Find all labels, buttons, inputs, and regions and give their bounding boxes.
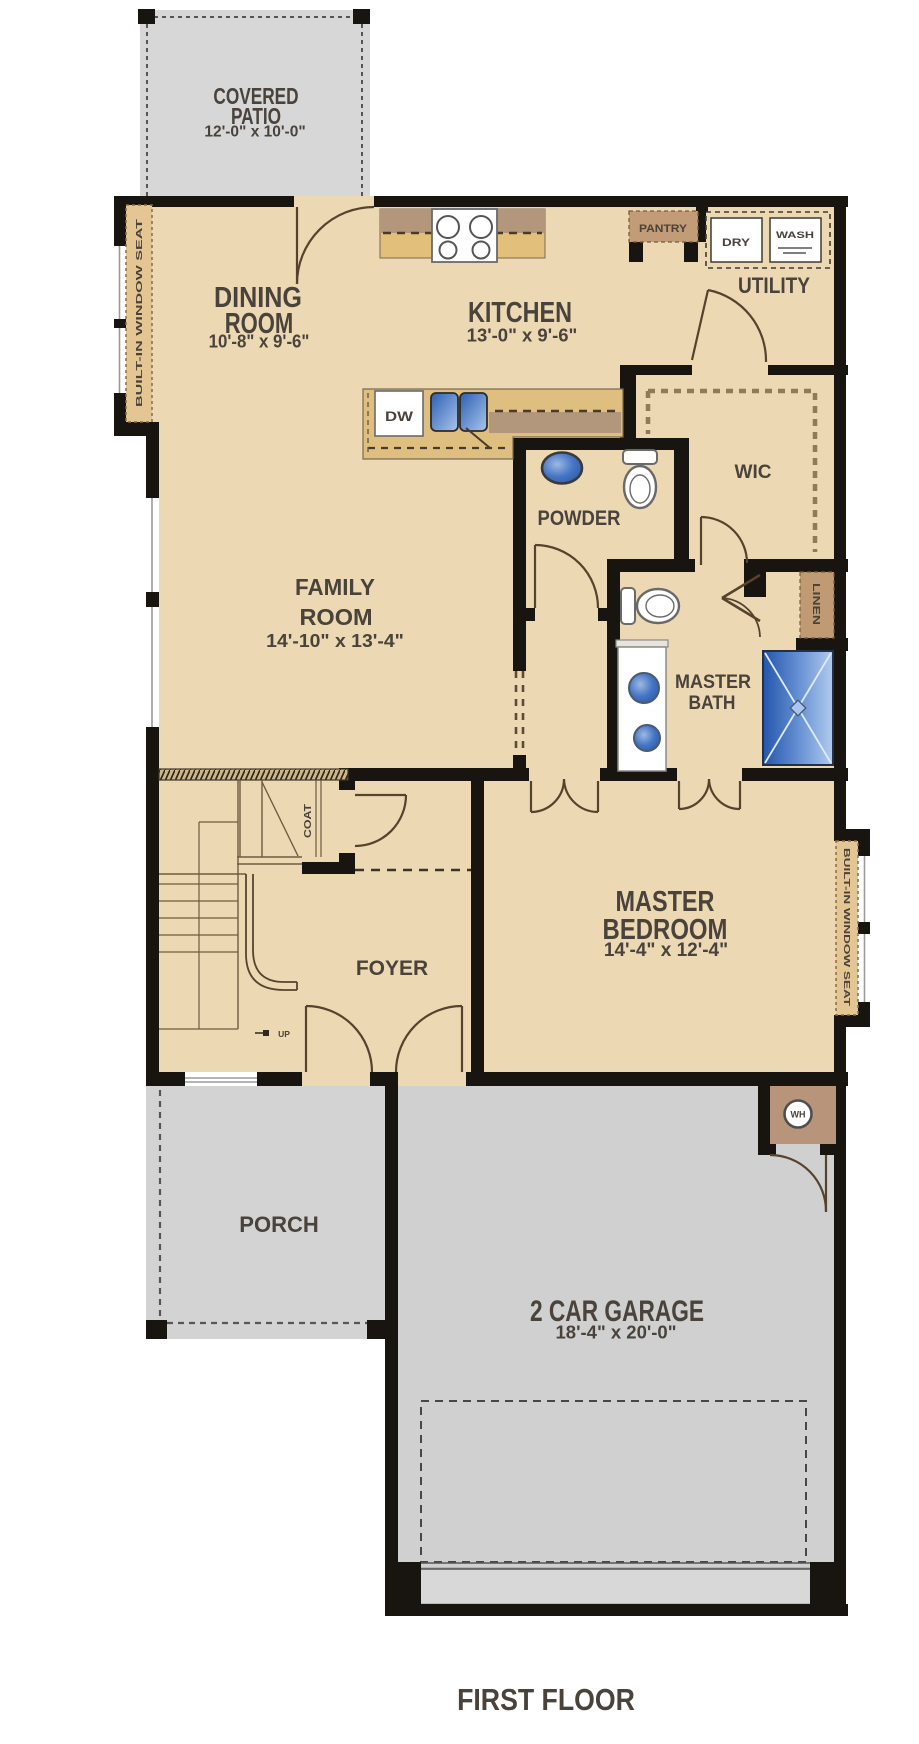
svg-text:BATH: BATH: [689, 692, 736, 713]
svg-text:FOYER: FOYER: [356, 957, 428, 980]
svg-text:UTILITY: UTILITY: [738, 274, 810, 299]
svg-text:FAMILY: FAMILY: [295, 573, 375, 600]
svg-text:10'-8" x 9'-6": 10'-8" x 9'-6": [209, 331, 310, 352]
svg-text:DRY: DRY: [722, 237, 751, 249]
svg-text:12'-0" x 10'-0": 12'-0" x 10'-0": [204, 124, 305, 141]
svg-text:WH: WH: [791, 1110, 806, 1120]
svg-text:POWDER: POWDER: [538, 507, 621, 530]
svg-text:MASTER: MASTER: [675, 671, 751, 693]
svg-text:BUILT-IN WINDOW SEAT: BUILT-IN WINDOW SEAT: [842, 848, 852, 1007]
svg-text:14'-4" x 12'-4": 14'-4" x 12'-4": [604, 940, 728, 961]
svg-text:UP: UP: [278, 1029, 290, 1039]
svg-text:14'-10" x 13'-4": 14'-10" x 13'-4": [266, 631, 404, 651]
svg-text:PANTRY: PANTRY: [639, 223, 688, 235]
svg-text:WIC: WIC: [735, 462, 772, 483]
svg-text:ROOM: ROOM: [299, 604, 372, 630]
svg-text:PORCH: PORCH: [239, 1212, 318, 1237]
svg-text:18'-4" x 20'-0": 18'-4" x 20'-0": [556, 1322, 677, 1343]
svg-text:DW: DW: [385, 408, 414, 424]
svg-text:WASH: WASH: [776, 230, 814, 241]
svg-text:BUILT-IN WINDOW SEAT: BUILT-IN WINDOW SEAT: [134, 217, 144, 407]
svg-text:COAT: COAT: [303, 804, 314, 838]
svg-text:13'-0" x 9'-6": 13'-0" x 9'-6": [467, 325, 578, 346]
svg-text:FIRST FLOOR: FIRST FLOOR: [457, 1683, 635, 1717]
svg-text:LINEN: LINEN: [810, 583, 821, 625]
